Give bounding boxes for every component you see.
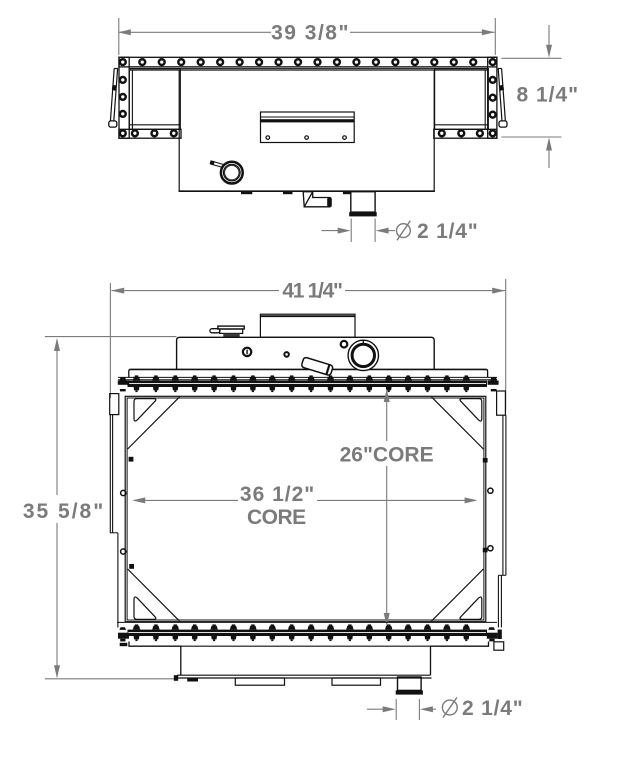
svg-text:8 1/4": 8 1/4"	[516, 84, 579, 107]
svg-text:2 1/4": 2 1/4"	[417, 220, 478, 243]
svg-text:26"CORE: 26"CORE	[340, 444, 434, 467]
svg-text:39 3/8": 39 3/8"	[271, 22, 350, 45]
svg-text:2 1/4": 2 1/4"	[462, 697, 523, 720]
svg-text:CORE: CORE	[247, 506, 306, 529]
svg-text:41 1/4": 41 1/4"	[282, 280, 342, 303]
svg-text:35 5/8": 35 5/8"	[23, 500, 105, 523]
svg-text:36 1/2": 36 1/2"	[240, 483, 315, 506]
